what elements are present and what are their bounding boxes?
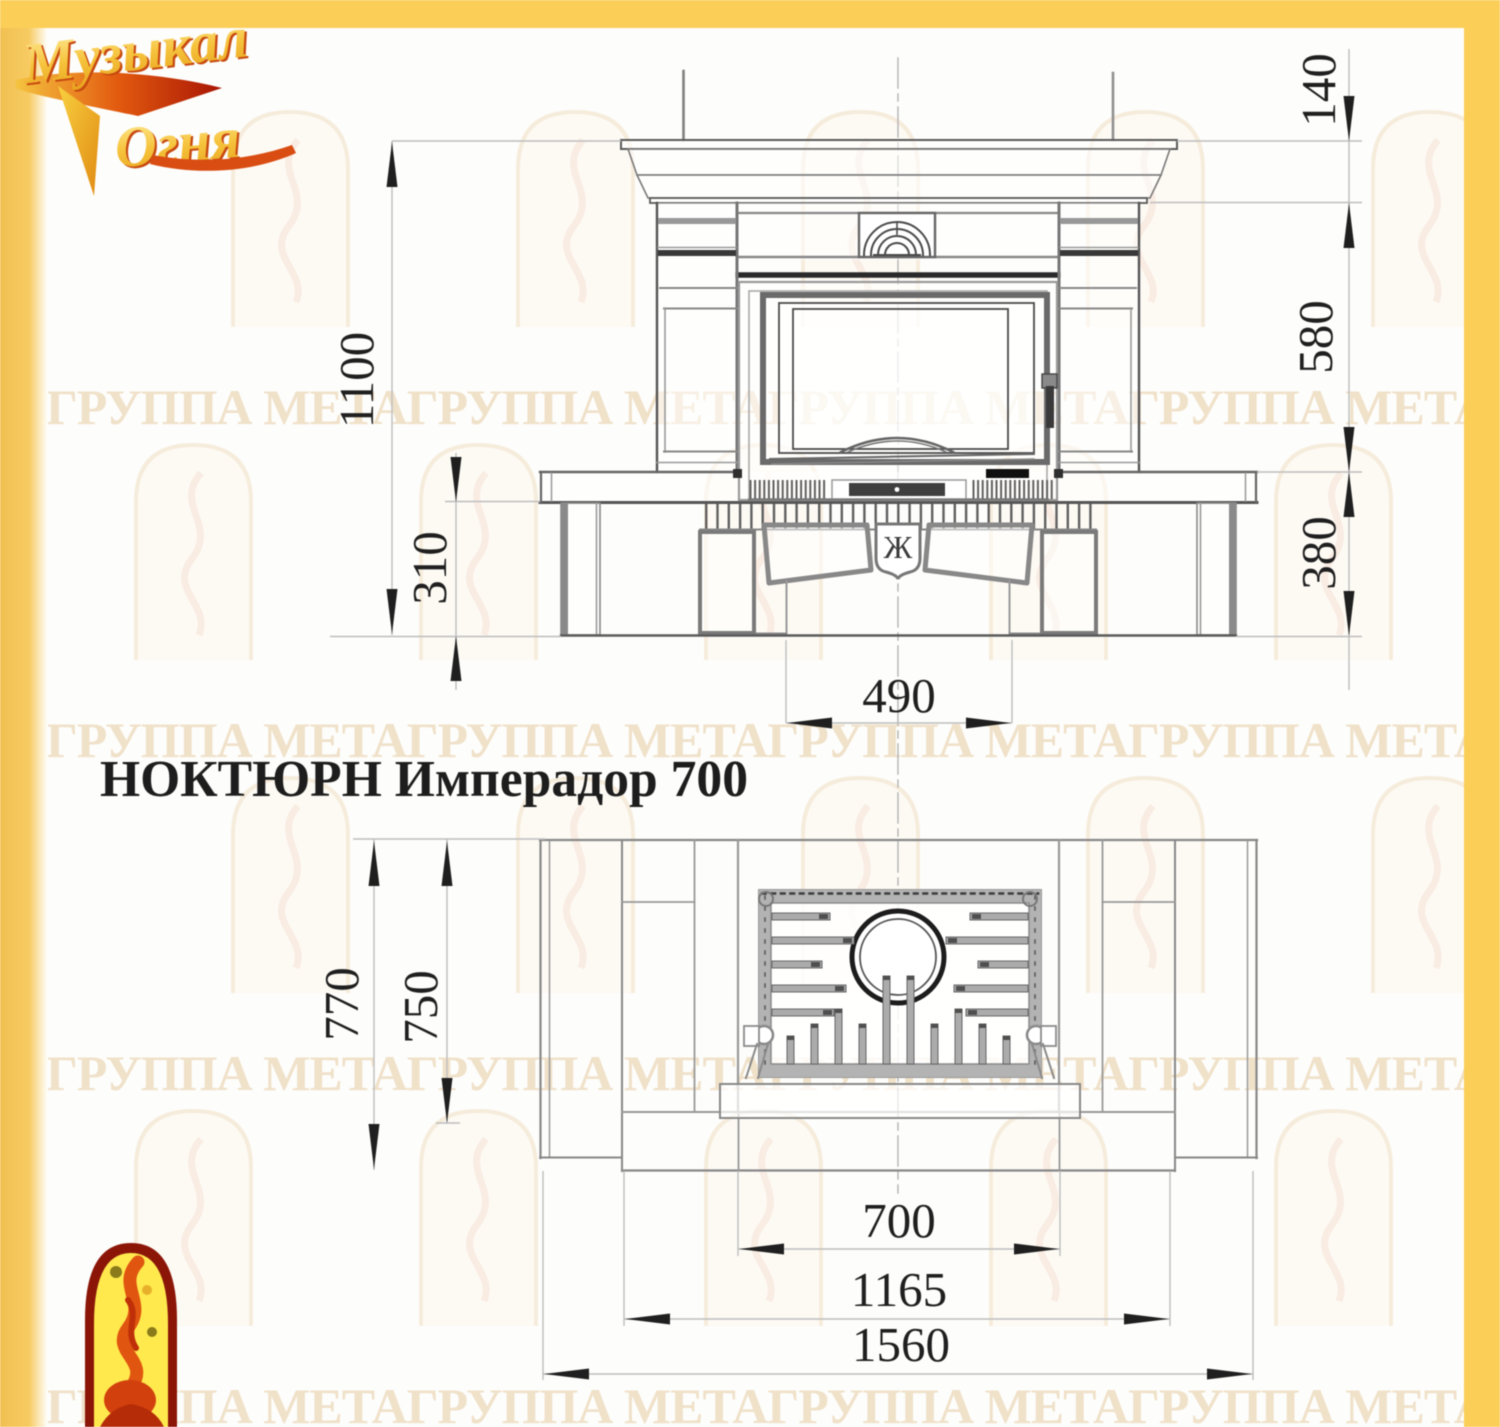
svg-text:1560: 1560 <box>852 1317 950 1372</box>
svg-text:Ж: Ж <box>884 529 913 565</box>
svg-text:НОКТЮРН Имперадор 700: НОКТЮРН Имперадор 700 <box>100 751 748 808</box>
svg-text:1100: 1100 <box>329 332 384 428</box>
svg-text:580: 580 <box>1288 300 1343 374</box>
svg-text:750: 750 <box>393 970 448 1044</box>
svg-text:140: 140 <box>1291 53 1346 127</box>
svg-text:310: 310 <box>402 531 457 605</box>
svg-text:380: 380 <box>1291 516 1346 590</box>
svg-text:1165: 1165 <box>851 1262 947 1317</box>
svg-text:ГРУППА МЕТАГРУППА МЕТАГРУППА М: ГРУППА МЕТАГРУППА МЕТАГРУППА МЕТАГРУППА … <box>46 1378 1500 1427</box>
svg-text:770: 770 <box>314 967 369 1041</box>
svg-text:700: 700 <box>862 1193 936 1248</box>
svg-text:490: 490 <box>862 668 936 723</box>
